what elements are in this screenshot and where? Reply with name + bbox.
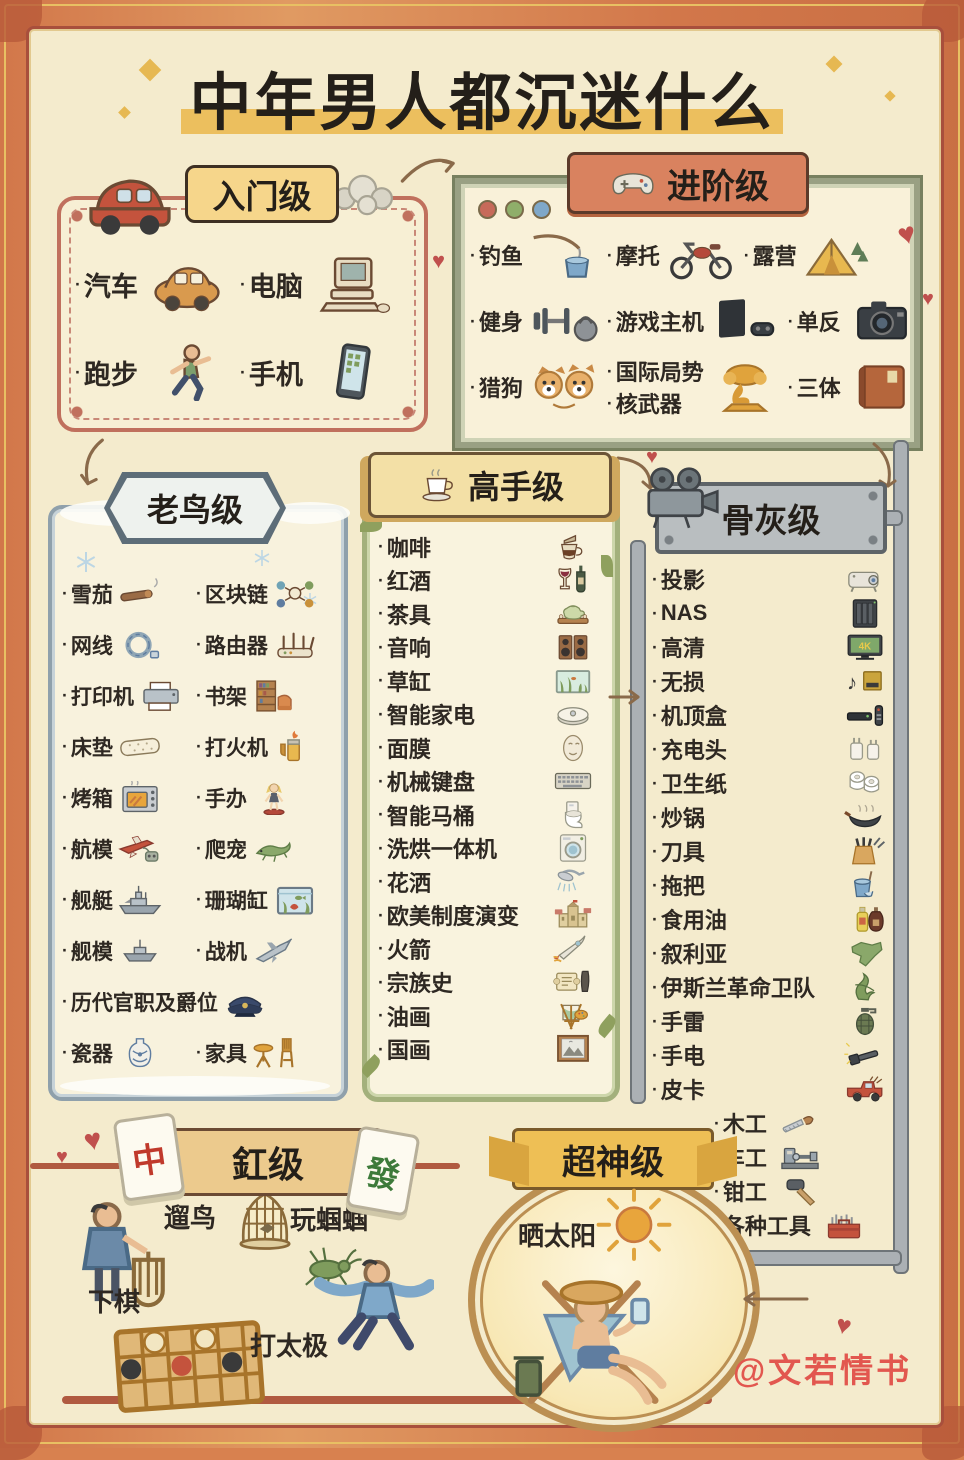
lighter-icon <box>271 730 319 764</box>
item-label: 皮卡 <box>661 1073 705 1105</box>
furniture-icon <box>250 1036 298 1070</box>
entry-items: ·汽车·电脑·跑步·手机 <box>75 240 405 416</box>
bullet: · <box>652 943 658 964</box>
bullet: · <box>62 991 68 1012</box>
pipe-decoration <box>630 540 646 1104</box>
list-item: ·区块链 <box>196 568 330 619</box>
pour-over-coffee-icon <box>550 532 596 562</box>
item-label: 智能马桶 <box>387 799 475 831</box>
bullet: · <box>378 704 384 725</box>
bullet: · <box>196 583 202 604</box>
left-arrow-icon <box>735 1286 811 1312</box>
item-label: 区块链 <box>205 579 268 609</box>
list-item: ·投影 <box>652 562 888 596</box>
wine-icon <box>550 565 596 595</box>
console-buttons-icon <box>478 200 551 219</box>
planted-tank-icon <box>550 666 596 696</box>
bullet: · <box>788 311 794 332</box>
curved-arrow-icon <box>396 148 466 192</box>
fishing-icon <box>527 229 601 281</box>
svg-text:4K: 4K <box>859 641 871 652</box>
list-item: ·智能马桶 <box>378 798 596 832</box>
list-item: ·茶具 <box>378 597 596 631</box>
grenade-icon <box>842 1006 888 1037</box>
nas-server-icon <box>842 598 888 629</box>
settop-box-icon <box>842 700 888 731</box>
list-item: ·充电头 <box>652 732 888 766</box>
gang-item-label: 打太极 <box>250 1326 328 1363</box>
easel-icon <box>550 1001 596 1031</box>
item-label: 卫生纸 <box>661 767 727 799</box>
film-projector-icon <box>638 466 724 532</box>
item-label: 汽车 <box>84 265 138 304</box>
bullet: · <box>378 603 384 624</box>
toilet-paper-icon <box>842 768 888 799</box>
tv-4k-icon: 4K <box>842 632 888 663</box>
bullet: · <box>62 736 68 757</box>
mahjong-tile-zhong: 中 <box>113 1112 186 1202</box>
list-item: ·木工 <box>714 1106 888 1140</box>
advanced-level-banner: 进阶级 <box>567 152 809 214</box>
watermark: @文若情书 <box>733 1344 912 1392</box>
item-label: 猎狗 <box>479 371 523 403</box>
bullet: · <box>378 804 384 825</box>
supergod-item-label: 晒太阳 <box>518 1216 596 1253</box>
item-label: 单反 <box>797 305 841 337</box>
item-label: 钓鱼 <box>479 239 523 271</box>
list-item: ·汽车 <box>75 240 240 328</box>
list-item: ·历代官职及爵位 <box>62 976 330 1027</box>
item-label: 历代官职及爵位 <box>71 987 218 1017</box>
entry-level-title: 入门级 <box>213 170 312 218</box>
list-item: ·高清4K <box>652 630 888 664</box>
entry-level-banner: 入门级 <box>185 165 339 223</box>
list-item: ·欧美制度演变 <box>378 899 596 933</box>
item-label: 跑步 <box>84 353 138 392</box>
advanced-row: ·健身·游戏主机·单反 <box>470 288 896 354</box>
expert-level-title: 高手级 <box>468 462 564 508</box>
music-album-icon: ♪ <box>842 666 888 697</box>
scroll-icon <box>550 967 596 997</box>
bullet: · <box>378 771 384 792</box>
book-icon <box>845 361 919 413</box>
figurine-icon <box>250 781 298 815</box>
item-label: 花洒 <box>387 866 431 898</box>
item-label: 床垫 <box>71 732 113 762</box>
mattress-icon <box>116 730 164 764</box>
gamepad-icon <box>607 166 659 200</box>
list-item: ·手机 <box>240 328 405 416</box>
item-label: 打印机 <box>71 681 134 711</box>
list-item: ·咖啡 <box>378 530 596 564</box>
bullet: · <box>652 977 658 998</box>
toolbox-icon <box>821 1210 867 1241</box>
bullet: · <box>196 838 202 859</box>
item-label: 航模 <box>71 834 113 864</box>
item-label: 投影 <box>661 563 705 595</box>
list-item: ·钓鱼 <box>470 229 601 281</box>
item-label: 咖啡 <box>387 531 431 563</box>
heart-icon: ♥ <box>432 248 445 274</box>
item-label: 茶具 <box>387 598 431 630</box>
item-label: 手机 <box>249 353 303 392</box>
item-label: 雪茄 <box>71 579 113 609</box>
list-item: ·NAS <box>652 596 888 630</box>
bullet: · <box>714 1113 720 1134</box>
list-item: ·油画 <box>378 999 596 1033</box>
washer-icon <box>550 833 596 863</box>
bullet: · <box>652 909 658 930</box>
item-label: 网线 <box>71 630 113 660</box>
veteran-items: ·雪茄·区块链·网线·路由器·打印机·书架·床垫·打火机·烤箱·手办·航模·爬宠… <box>62 568 330 1078</box>
list-item: ·舰模 <box>62 925 196 976</box>
item-label: 手电 <box>661 1039 705 1071</box>
bullet: · <box>378 905 384 926</box>
list-item: ·网线 <box>62 619 196 670</box>
snowflake-icon <box>254 550 270 566</box>
bullet: · <box>378 737 384 758</box>
list-item: ·花洒 <box>378 865 596 899</box>
item-label: 宗族史 <box>387 966 453 998</box>
face-mask-icon <box>550 733 596 763</box>
bullet: · <box>652 671 658 692</box>
item-label: 智能家电 <box>387 698 475 730</box>
bullet: · <box>62 583 68 604</box>
officer-cap-icon <box>221 985 269 1019</box>
list-item: ·珊瑚缸 <box>196 874 330 925</box>
bullet: · <box>470 245 476 266</box>
list-item: ·路由器 <box>196 619 330 670</box>
bullet: · <box>652 603 658 624</box>
bullet: · <box>652 773 658 794</box>
list-item: ·健身 <box>470 295 601 347</box>
item-label: 手办 <box>205 783 247 813</box>
list-item: ·单反 <box>788 295 919 347</box>
bullet: · <box>607 361 613 382</box>
advanced-items: ·钓鱼·摩托·露营 ·健身·游戏主机·单反 ·猎狗·国际局势·核武器·三体 <box>470 222 896 420</box>
bullet: · <box>62 685 68 706</box>
taichi-man-icon <box>312 1258 434 1398</box>
warship-icon <box>116 883 164 917</box>
knife-block-icon <box>842 836 888 867</box>
hand-saw-icon <box>777 1108 823 1139</box>
down-arrow-icon <box>70 436 114 494</box>
item-label: 面膜 <box>387 732 431 764</box>
bullet: · <box>196 1042 202 1063</box>
item-label: 舰艇 <box>71 885 113 915</box>
item-label: 无损 <box>661 665 705 697</box>
list-item: ·爬宠 <box>196 823 330 874</box>
list-item: ·烤箱 <box>62 772 196 823</box>
advanced-row: ·猎狗·国际局势·核武器·三体 <box>470 354 896 420</box>
rc-plane-icon <box>116 832 164 866</box>
bullet: · <box>652 1079 658 1100</box>
list-item: ·雪茄 <box>62 568 196 619</box>
list-item: ·国际局势·核武器 <box>607 355 782 419</box>
bullet: · <box>62 889 68 910</box>
supergod-level-title: 超神级 <box>562 1135 664 1184</box>
list-item: ·火箭 <box>378 932 596 966</box>
list-item: ·战机 <box>196 925 330 976</box>
keyboard-icon <box>550 766 596 796</box>
list-item: ·猎狗 <box>470 361 601 413</box>
item-label: 火箭 <box>387 933 431 965</box>
shower-head-icon <box>550 867 596 897</box>
list-item: ·航模 <box>62 823 196 874</box>
expert-items: ·咖啡·红酒·茶具·音响·草缸·智能家电·面膜·机械键盘·智能马桶·洗烘一体机·… <box>378 530 596 1066</box>
item-label: 油画 <box>387 1000 431 1032</box>
list-item: ·瓷器 <box>62 1027 196 1078</box>
lizard-icon <box>250 832 298 866</box>
heart-icon: ♥ <box>922 288 934 311</box>
bullet: · <box>788 377 794 398</box>
bullet: · <box>652 841 658 862</box>
bullet: · <box>196 889 202 910</box>
router-icon <box>271 628 319 662</box>
bullet: · <box>607 311 613 332</box>
porcelain-vase-icon <box>116 1036 164 1070</box>
item-label: 叙利亚 <box>661 937 727 969</box>
item-label: 电脑 <box>249 265 303 304</box>
bullet: · <box>378 838 384 859</box>
game-console-icon <box>708 295 782 347</box>
item-label: 摩托 <box>616 239 660 271</box>
bullet: · <box>378 938 384 959</box>
item-label: 伊斯兰革命卫队 <box>661 971 815 1003</box>
gang-level-title: 釭级 <box>232 1136 304 1188</box>
item-label: 洗烘一体机 <box>387 832 497 864</box>
lathe-icon <box>777 1142 823 1173</box>
bullet: · <box>240 274 246 295</box>
bullet: · <box>75 274 81 295</box>
pipe-decoration <box>738 1250 902 1266</box>
item-label: 高清 <box>661 631 705 663</box>
fitness-icon <box>527 295 601 347</box>
list-item: ·音响 <box>378 631 596 665</box>
list-item: ·智能家电 <box>378 698 596 732</box>
bullet: · <box>378 536 384 557</box>
bullet: · <box>378 871 384 892</box>
bullet: · <box>470 377 476 398</box>
robot-vacuum-icon <box>550 699 596 729</box>
toy-car-icon <box>78 160 182 220</box>
bullet: · <box>75 362 81 383</box>
smoke-puff-icon <box>330 168 402 218</box>
item-label: 游戏主机 <box>616 305 704 337</box>
coffee-cup-icon <box>416 468 460 502</box>
bullet: · <box>62 634 68 655</box>
item-label: 机械键盘 <box>387 765 475 797</box>
item-label: 充电头 <box>661 733 727 765</box>
list-item: ·机械键盘 <box>378 765 596 799</box>
advanced-row: ·钓鱼·摩托·露营 <box>470 222 896 288</box>
veteran-level-banner: 老鸟级 <box>104 472 286 544</box>
ship-model-icon <box>116 934 164 968</box>
item-label: 国际局势 <box>616 355 704 387</box>
castle-icon <box>550 900 596 930</box>
list-item: ·拖把 <box>652 868 888 902</box>
right-arrow-icon <box>606 682 646 712</box>
list-item: ·书架 <box>196 670 330 721</box>
item-label: 食用油 <box>661 903 727 935</box>
veteran-level-title: 老鸟级 <box>110 478 280 538</box>
painting-icon <box>550 1034 596 1064</box>
item-label: 草缸 <box>387 665 431 697</box>
list-item: ·国画 <box>378 1033 596 1067</box>
item-label: 路由器 <box>205 630 268 660</box>
bullet: · <box>744 245 750 266</box>
item-label: 国画 <box>387 1033 431 1065</box>
item-label: 烤箱 <box>71 783 113 813</box>
list-item: ·刀具 <box>652 834 888 868</box>
bullet: · <box>378 1039 384 1060</box>
mallet-icon <box>777 1176 823 1207</box>
list-item: ·手办 <box>196 772 330 823</box>
bullet: · <box>607 245 613 266</box>
bullet: · <box>240 362 246 383</box>
list-item: ·跑步 <box>75 328 240 416</box>
list-item: ·露营 <box>744 229 875 281</box>
list-item: ·卫生纸 <box>652 766 888 800</box>
shiba-dogs-icon <box>527 361 601 413</box>
bullet: · <box>196 940 202 961</box>
bullet: · <box>652 1011 658 1032</box>
printer-icon <box>137 679 185 713</box>
supergod-level-banner: 超神级 <box>512 1128 714 1190</box>
hardcore-level-title: 骨灰级 <box>722 494 821 542</box>
green-emblem-icon <box>842 972 888 1003</box>
speakers-icon <box>550 632 596 662</box>
item-label: 爬宠 <box>205 834 247 864</box>
item-label: 瓷器 <box>71 1038 113 1068</box>
list-item: ·草缸 <box>378 664 596 698</box>
bullet: · <box>196 685 202 706</box>
item-label: 手雷 <box>661 1005 705 1037</box>
bullet: · <box>62 1042 68 1063</box>
blockchain-icon <box>271 577 319 611</box>
advanced-level-title: 进阶级 <box>667 159 769 208</box>
bullet: · <box>378 670 384 691</box>
rocket-icon <box>550 934 596 964</box>
oven-icon <box>116 781 164 815</box>
fighter-jet-icon <box>250 934 298 968</box>
item-label: 刀具 <box>661 835 705 867</box>
list-item: ·三体 <box>788 361 919 413</box>
list-item: ·宗族史 <box>378 966 596 1000</box>
list-item: ·炒锅 <box>652 800 888 834</box>
list-item: ·皮卡 <box>652 1072 888 1106</box>
item-label: 打火机 <box>205 732 268 762</box>
bookshelf-icon <box>250 679 298 713</box>
bullet: · <box>378 637 384 658</box>
sunbathing-man-icon <box>496 1252 708 1404</box>
bullet: · <box>652 637 658 658</box>
list-item: ·叙利亚 <box>652 936 888 970</box>
bullet: · <box>652 875 658 896</box>
gang-item-label: 下棋 <box>88 1282 140 1319</box>
list-item: ·洗烘一体机 <box>378 832 596 866</box>
item-label: 核武器 <box>616 387 682 419</box>
item-label: 舰模 <box>71 936 113 966</box>
list-item: ·家具 <box>196 1027 330 1078</box>
fish-tank-icon <box>271 883 319 917</box>
item-label: 机顶盒 <box>661 699 727 731</box>
list-item: ·钳工 <box>714 1174 888 1208</box>
bullet: · <box>196 736 202 757</box>
cigar-icon <box>116 577 164 611</box>
gang-item-label: 遛鸟 <box>164 1198 216 1235</box>
list-item: ·摩托 <box>607 229 738 281</box>
item-label: 钳工 <box>723 1175 767 1207</box>
charger-icon <box>842 734 888 765</box>
list-item: ·电脑 <box>240 240 405 328</box>
item-label: 露营 <box>753 239 797 271</box>
tent-icon <box>801 229 875 281</box>
mop-bucket-icon <box>842 870 888 901</box>
bullet: · <box>378 570 384 591</box>
syria-map-icon <box>842 938 888 969</box>
list-item: ·打印机 <box>62 670 196 721</box>
heart-icon: ♥ <box>56 1146 68 1169</box>
item-label: 木工 <box>723 1107 767 1139</box>
list-item: ·无损♪ <box>652 664 888 698</box>
bullet: · <box>196 787 202 808</box>
computer-retro-icon <box>307 255 397 313</box>
pipe-decoration <box>893 440 909 1274</box>
flashlight-icon <box>842 1040 888 1071</box>
bullet: · <box>714 1181 720 1202</box>
bullet: · <box>652 705 658 726</box>
list-item: ·床垫 <box>62 721 196 772</box>
bullet: · <box>378 1005 384 1026</box>
cable-coil-icon <box>116 628 164 662</box>
wok-icon <box>842 802 888 833</box>
projector-icon <box>842 564 888 595</box>
bullet: · <box>652 807 658 828</box>
item-label: 书架 <box>205 681 247 711</box>
item-label: 三体 <box>797 371 841 403</box>
list-item: ·伊斯兰革命卫队 <box>652 970 888 1004</box>
bullet: · <box>652 1045 658 1066</box>
item-label: 拖把 <box>661 869 705 901</box>
list-item: ·机顶盒 <box>652 698 888 732</box>
item-label: 健身 <box>479 305 523 337</box>
leaf-icon <box>601 555 613 577</box>
bullet: · <box>652 739 658 760</box>
bullet: · <box>62 940 68 961</box>
list-item: ·车工 <box>714 1140 888 1174</box>
item-label: 红酒 <box>387 564 431 596</box>
bullet: · <box>196 634 202 655</box>
oil-bottles-icon <box>842 904 888 935</box>
svg-text:♪: ♪ <box>847 671 857 694</box>
item-label: 欧美制度演变 <box>387 899 519 931</box>
bullet: · <box>652 569 658 590</box>
runner-icon <box>142 343 232 401</box>
list-item: ·食用油 <box>652 902 888 936</box>
list-item: ·面膜 <box>378 731 596 765</box>
motorcycle-icon <box>664 229 738 281</box>
list-item: ·手雷 <box>652 1004 888 1038</box>
expert-level-banner: 高手级 <box>368 452 612 518</box>
bullet: · <box>62 838 68 859</box>
smart-toilet-icon <box>550 800 596 830</box>
item-label: 炒锅 <box>661 801 705 833</box>
item-label: 战机 <box>205 936 247 966</box>
item-label: 珊瑚缸 <box>205 885 268 915</box>
snow-cap <box>60 1076 330 1096</box>
bullet: · <box>470 311 476 332</box>
